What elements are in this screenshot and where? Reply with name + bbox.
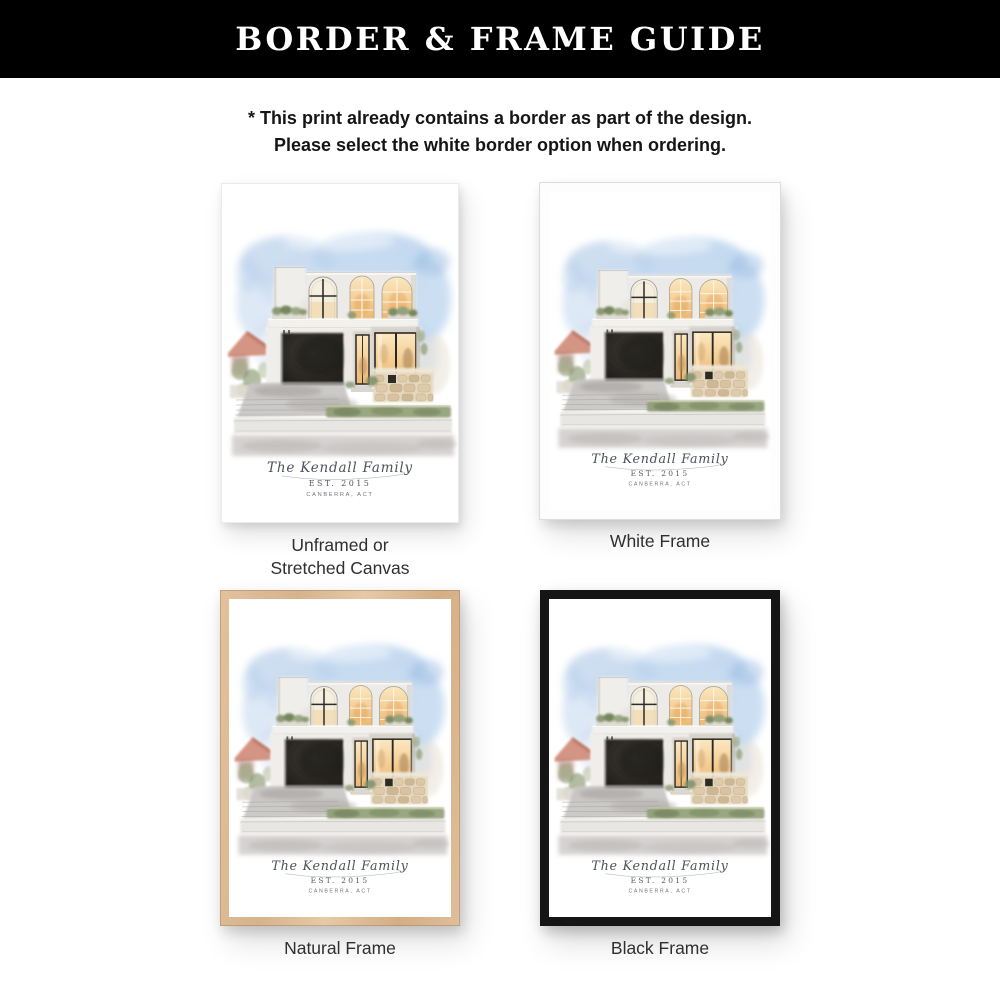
house-portrait-artwork xyxy=(549,192,771,510)
house-portrait-artwork xyxy=(229,599,451,917)
option-label-unframed: Unframed or Stretched Canvas xyxy=(270,534,409,580)
frame-option-white: White Frame xyxy=(500,183,820,580)
frame-options-grid: Unframed or Stretched Canvas White Frame… xyxy=(0,183,1000,959)
frame-option-natural: Natural Frame xyxy=(180,590,500,960)
header-banner: BORDER & FRAME GUIDE xyxy=(0,0,1000,78)
print-mockup-black-frame xyxy=(540,590,780,926)
print-surface xyxy=(549,192,771,510)
frame-option-unframed: Unframed or Stretched Canvas xyxy=(180,183,500,580)
page-title: BORDER & FRAME GUIDE xyxy=(235,23,764,55)
option-label-black-frame: Black Frame xyxy=(611,937,709,960)
note-line-1: * This print already contains a border a… xyxy=(0,105,1000,132)
print-mockup-natural-frame xyxy=(220,590,460,926)
option-label-natural-frame: Natural Frame xyxy=(284,937,396,960)
print-surface xyxy=(229,599,451,917)
print-surface xyxy=(549,599,771,917)
print-mockup-unframed xyxy=(221,183,459,523)
house-portrait-artwork xyxy=(549,599,771,917)
frame-option-black: Black Frame xyxy=(500,590,820,960)
border-frame-guide-page: BORDER & FRAME GUIDE * This print alread… xyxy=(0,0,1000,959)
design-note: * This print already contains a border a… xyxy=(0,105,1000,159)
note-line-2: Please select the white border option wh… xyxy=(0,132,1000,159)
print-surface xyxy=(222,184,458,522)
print-mockup-white-frame xyxy=(540,183,780,519)
house-portrait-artwork xyxy=(222,184,458,522)
option-label-white-frame: White Frame xyxy=(610,530,710,553)
